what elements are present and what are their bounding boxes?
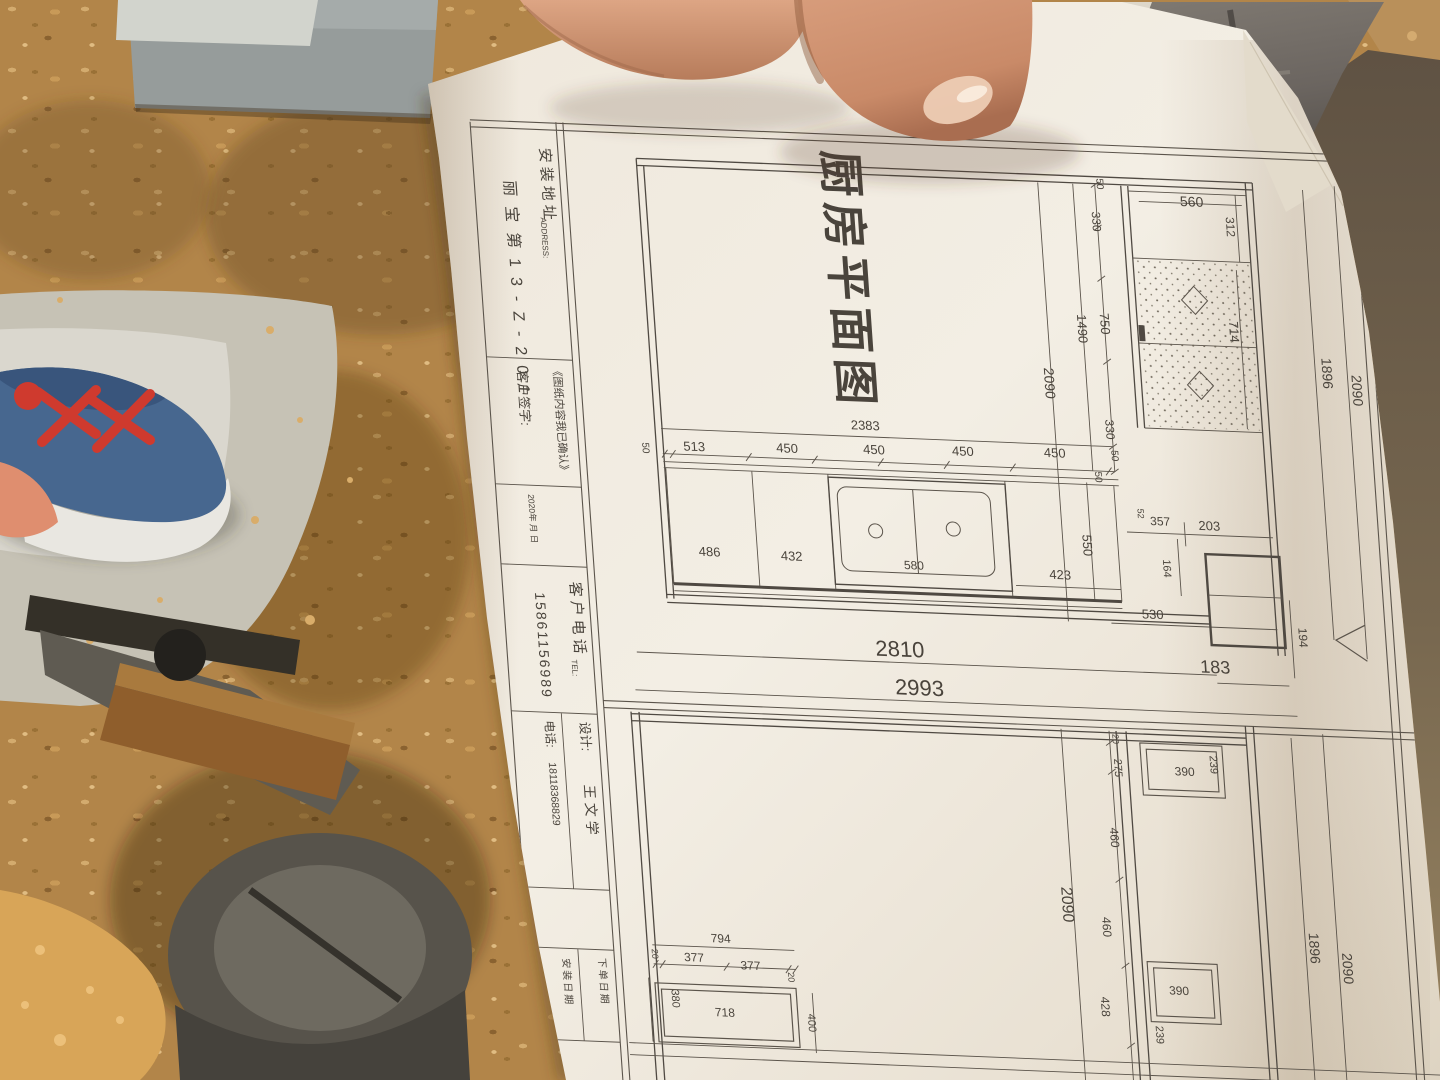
wall-mark <box>1138 325 1145 341</box>
dim-label: 1896 <box>1306 932 1324 964</box>
title-block-text: TEL: <box>570 659 580 676</box>
dim-label: 718 <box>714 1005 735 1020</box>
dim-label: 183 <box>1200 657 1231 678</box>
dim-label: 450 <box>1043 445 1066 461</box>
saw-knob <box>154 629 206 681</box>
scene-canvas: 厨房平面图安装地址ADDRESS:丽宝第13-Z-201《图纸内容我已确认》客户… <box>0 0 1440 1080</box>
dim-label: 239 <box>1206 755 1219 774</box>
dim-label: 2090 <box>1348 375 1366 407</box>
title-block-text: 电话: <box>542 720 558 748</box>
dim-label: 2090 <box>1041 367 1059 399</box>
shoe-lace-knot <box>14 382 42 410</box>
dim-label: 20 <box>786 972 797 982</box>
dim-label: 750 <box>1097 313 1113 335</box>
dim-label: 580 <box>903 558 924 573</box>
dim-label: 714 <box>1226 321 1242 343</box>
title-block-text: 设计: <box>577 721 594 751</box>
dim-label: 50 <box>639 442 651 454</box>
dim-label: 330 <box>1089 211 1104 232</box>
floor-stain <box>0 100 210 280</box>
dim-label: 50 <box>1108 450 1120 462</box>
dim-label: 423 <box>1049 567 1072 583</box>
dim-label: 794 <box>710 931 731 946</box>
photo-scene: { "drawing": { "header": [ {"t":"厨房平面图",… <box>0 0 1440 1080</box>
dim-label: 460 <box>1107 827 1122 848</box>
saw-turntable-top <box>214 865 426 1031</box>
dim-label: 2810 <box>875 636 926 663</box>
dim-label: 428 <box>1098 997 1113 1018</box>
dim-label: 357 <box>1150 514 1171 529</box>
dim-label: 1490 <box>1074 314 1091 344</box>
dim-label: 275 <box>1111 759 1124 778</box>
dim-label: 52 <box>1135 508 1146 518</box>
dim-label: 50 <box>1093 178 1105 190</box>
dim-label: 20 <box>650 949 661 959</box>
dim-label: 460 <box>1099 917 1114 938</box>
dim-label: 312 <box>1223 217 1238 238</box>
dim-label: 50 <box>1092 471 1104 483</box>
dim-label: 450 <box>951 443 974 459</box>
dim-label: 203 <box>1198 518 1221 534</box>
dim-label: 450 <box>776 440 799 456</box>
dim-label: 330 <box>1102 419 1117 440</box>
dim-label: 239 <box>1153 1025 1166 1044</box>
dim-label: 390 <box>1169 983 1190 998</box>
dim-label: 560 <box>1179 193 1204 210</box>
dim-label: 377 <box>684 950 705 965</box>
dim-label: 2993 <box>894 674 945 701</box>
dim-label: 530 <box>1141 606 1164 622</box>
dim-label: 450 <box>863 442 886 458</box>
dim-label: 2090 <box>1339 953 1357 985</box>
dim-label: 1896 <box>1318 358 1336 390</box>
dim-label: 377 <box>740 958 761 973</box>
dim-label: 550 <box>1079 534 1095 556</box>
dim-label: 2090 <box>1057 886 1077 922</box>
dim-label: 513 <box>683 438 706 454</box>
osb-chip <box>1407 31 1417 41</box>
dim-label: 2383 <box>850 417 880 433</box>
dim-label: 380 <box>668 989 681 1008</box>
dim-label: 486 <box>698 544 721 560</box>
dim-label: 20 <box>1110 734 1121 744</box>
dim-label: 194 <box>1295 627 1310 648</box>
dim-label: 390 <box>1174 764 1195 779</box>
white-board <box>116 0 318 46</box>
dim-label: 400 <box>805 1014 818 1033</box>
dim-label: 432 <box>780 548 803 564</box>
finger-shadow <box>550 82 850 134</box>
dim-label: 164 <box>1160 559 1173 578</box>
